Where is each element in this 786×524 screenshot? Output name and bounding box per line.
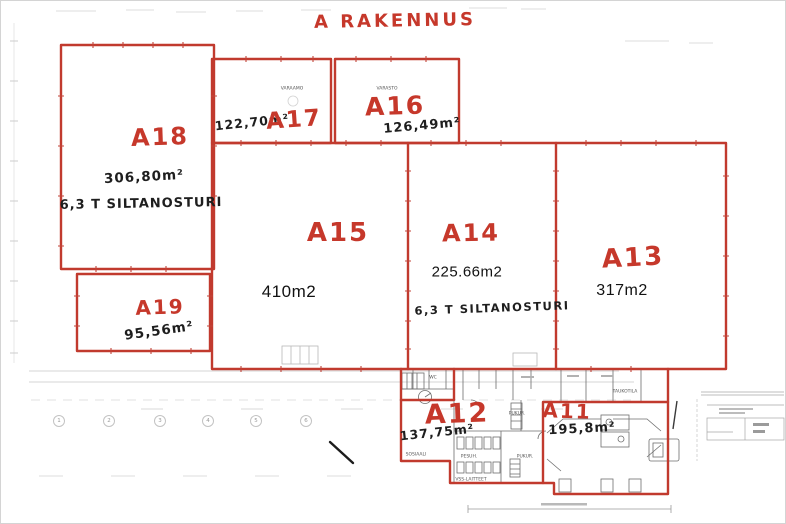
grid-axis-bubble: 6 <box>300 415 312 427</box>
printed-room-label: WC <box>429 376 437 381</box>
room-label-a17: A17 <box>265 105 322 135</box>
room-label-a19: A19 <box>135 294 185 320</box>
room-smallprint-a16: VARASTO <box>376 87 397 92</box>
grid-axis-bubble: 3 <box>154 415 166 427</box>
grid-axis-bubble: 1 <box>53 415 65 427</box>
printed-room-label: PUKUR. <box>509 412 526 417</box>
grid-axis-bubble: 5 <box>250 415 262 427</box>
printed-room-label: TAUKOTILA <box>613 390 638 395</box>
room-label-a18: A18 <box>131 122 190 152</box>
dimension-line <box>468 503 671 513</box>
plan-linework <box>1 1 786 524</box>
room-note-a18: 6,3 T SILTANOSTURI <box>59 195 222 213</box>
grid-axis-bubble: 4 <box>202 415 214 427</box>
room-label-a11: A11 <box>542 398 592 424</box>
printed-room-label: SOSIAALI <box>406 453 427 458</box>
room-label-a15: A15 <box>307 218 369 248</box>
room-area-a14: 225.66m2 <box>432 264 503 281</box>
floorplan-page: A RAKENNUS A18 306,80m² 6,3 T SILTANOSTU… <box>0 0 786 524</box>
printed-room-label: PUKUR. <box>517 455 534 460</box>
room-smallprint-a17: VARAAMO <box>281 87 304 92</box>
title-block <box>697 392 784 461</box>
grid-axis-bubble: 2 <box>103 415 115 427</box>
room-area-a15: 410m2 <box>262 282 316 302</box>
room-label-a14: A14 <box>442 218 500 247</box>
room-label-a16: A16 <box>364 90 425 121</box>
drawing-title: A RAKENNUS <box>314 9 476 33</box>
room-label-a13: A13 <box>601 241 665 274</box>
room-outline-a18 <box>61 45 214 269</box>
room-area-a13: 317m2 <box>596 282 647 300</box>
printed-room-label: PESUH. <box>461 455 477 460</box>
printed-room-label: VSS-LAITTEET <box>455 478 486 483</box>
